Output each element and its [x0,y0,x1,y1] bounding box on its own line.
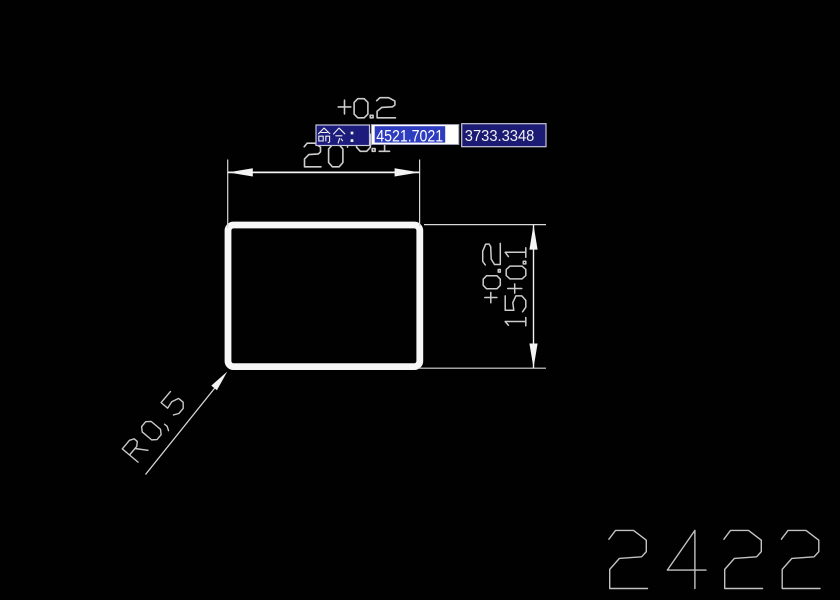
svg-text:4521.7021: 4521.7021 [376,127,443,145]
svg-text:3733.3348: 3733.3348 [465,128,535,145]
